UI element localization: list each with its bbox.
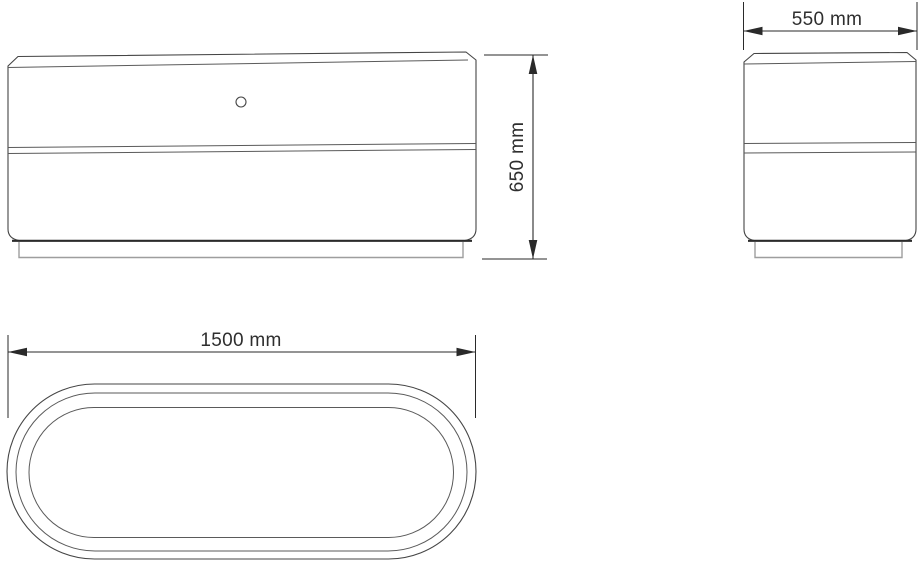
drawing-canvas: 650 mm 550 mm 1500 mm	[0, 0, 922, 562]
side-band-bottom-line	[744, 152, 916, 153]
top-middle-rim	[16, 393, 467, 551]
length-arrow-right-icon	[457, 348, 476, 357]
front-view	[8, 52, 476, 258]
front-plinth	[19, 242, 463, 258]
depth-dimension-label: 550 mm	[792, 9, 862, 30]
length-dimension-label: 1500 mm	[200, 330, 281, 351]
front-body-outline	[8, 52, 476, 241]
front-rim-line	[8, 60, 468, 68]
front-band-bottom-line	[8, 150, 476, 154]
side-body-outline	[744, 53, 916, 241]
top-view	[7, 384, 476, 559]
overflow-hole-icon	[236, 97, 246, 107]
side-rim-line	[744, 62, 916, 65]
top-outer-rim	[7, 384, 476, 559]
side-plinth	[755, 242, 902, 258]
height-dimension-label: 650 mm	[507, 122, 528, 192]
dimension-length-1500: 1500 mm	[8, 330, 476, 418]
top-basin-edge	[29, 408, 454, 538]
depth-arrow-left-icon	[744, 27, 763, 36]
technical-drawing: 650 mm 550 mm 1500 mm	[0, 0, 922, 562]
depth-arrow-right-icon	[898, 27, 917, 36]
side-band-top-line	[744, 143, 916, 144]
dimension-height-650: 650 mm	[482, 55, 548, 259]
height-arrow-down-icon	[529, 240, 538, 259]
front-band-top-line	[8, 144, 476, 148]
height-arrow-up-icon	[529, 55, 538, 74]
length-arrow-left-icon	[8, 348, 27, 357]
dimension-depth-550: 550 mm	[744, 2, 918, 50]
side-view	[744, 53, 916, 258]
